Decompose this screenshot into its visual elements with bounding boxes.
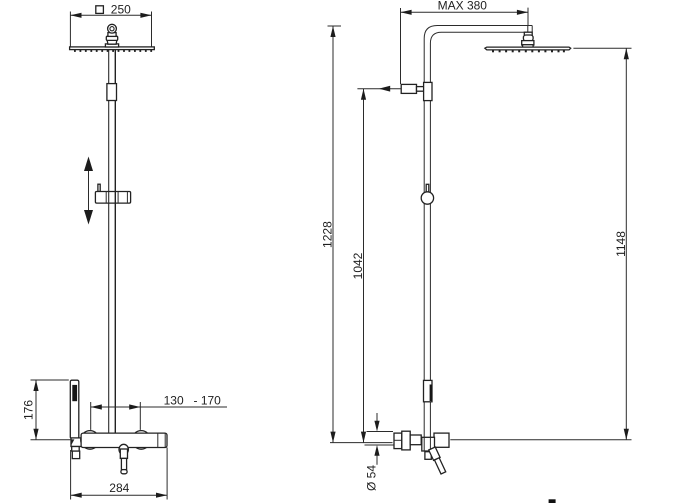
svg-text:1148: 1148 [614, 231, 628, 257]
svg-text:130: 130 [164, 393, 184, 407]
svg-text:284: 284 [109, 481, 129, 495]
svg-text:Ø 54: Ø 54 [364, 465, 378, 491]
svg-text:250: 250 [111, 3, 131, 17]
svg-text:MAX 380: MAX 380 [438, 0, 488, 13]
svg-text:- 170: - 170 [194, 393, 222, 407]
svg-text:176: 176 [22, 400, 36, 420]
svg-text:1042: 1042 [351, 252, 365, 279]
svg-text:1228: 1228 [321, 221, 335, 248]
